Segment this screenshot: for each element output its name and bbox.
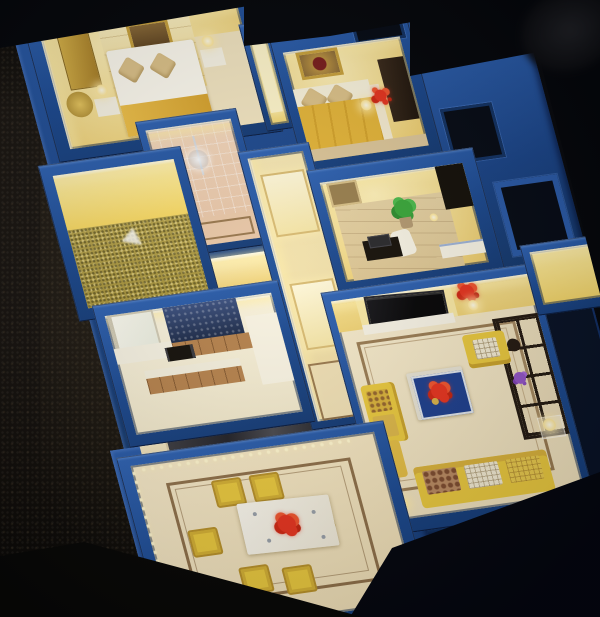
nightstand	[94, 96, 120, 117]
kitchen-interior	[105, 293, 303, 435]
armchair-cushion	[472, 337, 501, 360]
coffee-table	[406, 366, 474, 421]
sofa-cushion-grid	[505, 455, 545, 483]
dining-room-interior	[130, 432, 419, 617]
pillow	[149, 52, 177, 79]
round-mirror	[64, 90, 97, 119]
table-lamp	[94, 84, 109, 97]
shower-chandelier	[186, 148, 211, 170]
armchair	[461, 330, 511, 369]
black-cooktop	[165, 344, 196, 362]
wardrobe	[55, 28, 102, 91]
room-kitchen	[92, 280, 316, 448]
sofa-cushion-floral	[422, 467, 462, 495]
led-strip	[246, 27, 265, 33]
study-interior	[320, 163, 489, 282]
photo-canvas	[0, 0, 600, 617]
led-strip	[145, 119, 231, 135]
pillow	[117, 56, 145, 83]
white-wall-fridge	[245, 312, 295, 385]
dining-table	[236, 494, 340, 554]
red-flower-centerpiece	[276, 514, 298, 533]
plant-pot	[399, 217, 414, 229]
light-glare	[122, 226, 143, 245]
balcony-interior	[53, 159, 209, 308]
sofa-cushion-check	[463, 461, 503, 489]
nightstand	[200, 47, 226, 68]
medallion-wall-art	[295, 47, 344, 80]
led-strip	[529, 240, 600, 256]
balcony-2-interior	[529, 240, 600, 305]
tableware-specks	[252, 512, 257, 516]
sofa-cushion	[365, 389, 393, 413]
